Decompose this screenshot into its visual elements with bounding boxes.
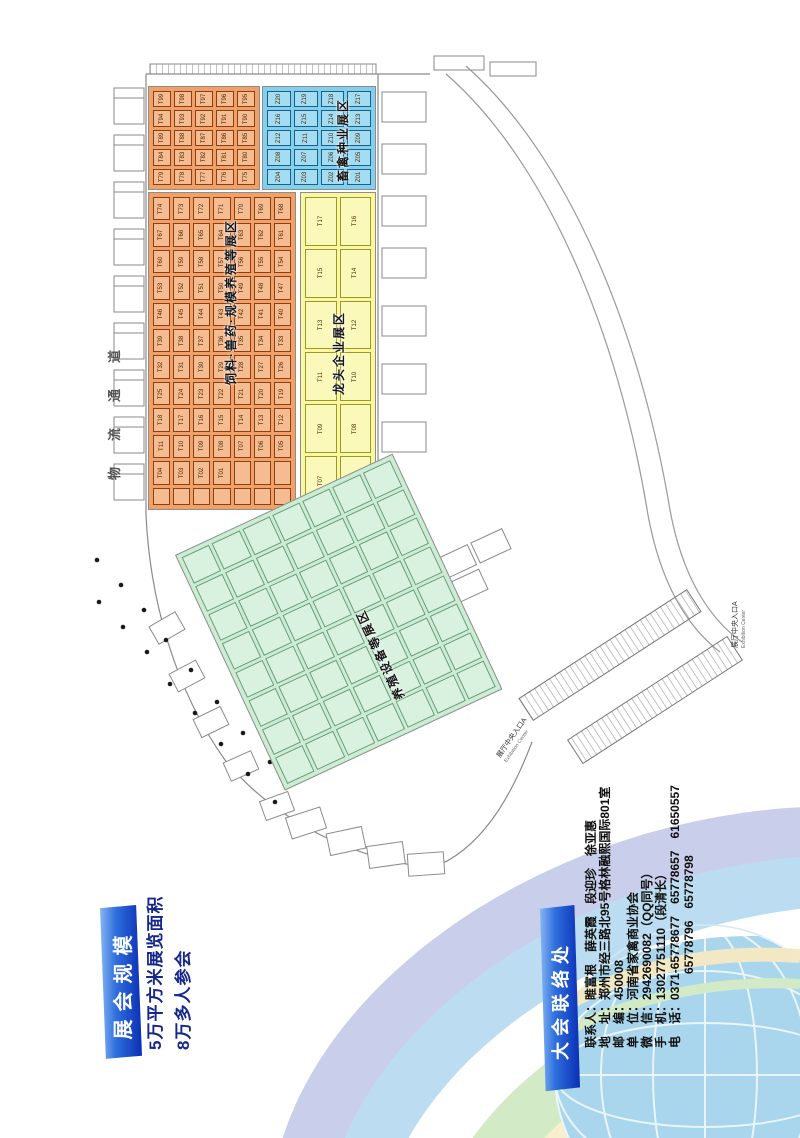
- zone-feed-main: T74T73T72T71T70T69T68T67T66T65T64T63T62T…: [148, 192, 296, 510]
- booth: T15: [213, 408, 230, 431]
- booth: T98: [174, 91, 192, 107]
- booth: T95: [237, 91, 255, 107]
- booth: T26: [274, 355, 291, 378]
- booth: [153, 488, 170, 505]
- booth: [193, 488, 210, 505]
- booth: T25: [153, 382, 170, 405]
- booth: T32: [153, 355, 170, 378]
- booth: T12: [274, 408, 291, 431]
- booth: T80: [237, 149, 255, 165]
- logistics-label: 物流通道: [106, 324, 124, 480]
- booth: T01: [213, 461, 230, 484]
- booth: T41: [254, 303, 271, 326]
- booth: T40: [274, 303, 291, 326]
- booth: T45: [173, 303, 190, 326]
- booth: T37: [193, 329, 210, 352]
- booth: T69: [254, 197, 271, 220]
- booth: [234, 461, 251, 484]
- booth: T76: [216, 169, 234, 185]
- booth: T15: [305, 249, 337, 298]
- contact-row: 邮 编：450008: [612, 960, 626, 1048]
- zone-seed: Z20Z19Z18Z17Z16Z15Z14Z13Z12Z11Z10Z09Z08Z…: [262, 86, 376, 190]
- booth: T17: [305, 197, 337, 246]
- booth: T73: [173, 197, 190, 220]
- booth: T33: [274, 329, 291, 352]
- booth: T77: [195, 169, 213, 185]
- booth: T67: [153, 223, 170, 246]
- zone-feed-top: T99T98T97T96T95T94T93T92T91T90T89T88T87T…: [148, 86, 260, 190]
- booth: T34: [254, 329, 271, 352]
- booth: T96: [216, 91, 234, 107]
- booth: T54: [274, 250, 291, 273]
- booth: T59: [173, 250, 190, 273]
- booth: T89: [153, 130, 171, 146]
- booth: [254, 488, 271, 505]
- booth: T39: [153, 329, 170, 352]
- booth: T47: [274, 276, 291, 299]
- booth: T79: [153, 169, 171, 185]
- booth: T08: [213, 435, 230, 458]
- booth: T23: [193, 382, 210, 405]
- booth: T60: [153, 250, 170, 273]
- booth: T87: [195, 130, 213, 146]
- booth: T97: [195, 91, 213, 107]
- booth: T48: [254, 276, 271, 299]
- booth: T61: [274, 223, 291, 246]
- booth: T99: [153, 91, 171, 107]
- booth: T91: [216, 110, 234, 126]
- booth: T16: [340, 197, 372, 246]
- booth: T19: [274, 382, 291, 405]
- booth: Z08: [267, 149, 291, 165]
- booth: T44: [193, 303, 210, 326]
- booth: [254, 461, 271, 484]
- booth: T71: [213, 197, 230, 220]
- booth: [213, 488, 230, 505]
- booth: Z04: [267, 169, 291, 185]
- booth: T93: [174, 110, 192, 126]
- booth: Z19: [294, 91, 318, 107]
- zone-seed-label: 畜禽种业展区: [336, 98, 350, 182]
- contact-row: 手 机：13027751110（段清长）: [654, 868, 668, 1048]
- booth: T55: [254, 250, 271, 273]
- booth: T08: [340, 404, 372, 453]
- booth: T90: [237, 110, 255, 126]
- booth: [173, 488, 190, 505]
- booth: Z17: [347, 91, 371, 107]
- booth: T17: [173, 408, 190, 431]
- booth: T68: [274, 197, 291, 220]
- booth: T18: [153, 408, 170, 431]
- booth: T46: [153, 303, 170, 326]
- entrance-label: 展厅中央入口A Exhibition Center: [730, 601, 747, 648]
- booth: Z05: [347, 149, 371, 165]
- booth: T13: [254, 408, 271, 431]
- booth: Z11: [294, 130, 318, 146]
- booth: T88: [174, 130, 192, 146]
- booth: T52: [173, 276, 190, 299]
- booth: T09: [193, 435, 210, 458]
- booth: T20: [254, 382, 271, 405]
- scale-area-line: 5万平方米展览面积: [146, 896, 166, 1050]
- booth: Z03: [294, 169, 318, 185]
- booth: T85: [237, 130, 255, 146]
- booth: T74: [153, 197, 170, 220]
- contact-banner-ribbon: 大会联络处: [540, 905, 580, 1095]
- booth: T51: [193, 276, 210, 299]
- scale-banner-ribbon: 展会规模: [100, 905, 142, 1062]
- booth: Z15: [294, 110, 318, 126]
- booth: T16: [193, 408, 210, 431]
- booth: T03: [173, 461, 190, 484]
- booth: T02: [193, 461, 210, 484]
- booth: T82: [195, 149, 213, 165]
- booth: T65: [193, 223, 210, 246]
- contact-row: 微 信：2942690082（QQ同号）: [640, 867, 654, 1048]
- contact-banner-text: 大会联络处: [547, 940, 573, 1060]
- booth: T05: [274, 435, 291, 458]
- zone-leading-label: 龙头企业展区: [332, 311, 346, 395]
- booth: T04: [153, 461, 170, 484]
- booth: T22: [213, 382, 230, 405]
- booth: T14: [340, 249, 372, 298]
- booth: T72: [193, 197, 210, 220]
- poster: 展厅中央入口A Exhibition Center 展厅中央入口A Exhibi…: [0, 0, 800, 1138]
- booth: T07: [234, 435, 251, 458]
- booth: T24: [173, 382, 190, 405]
- booth: T09: [305, 404, 337, 453]
- booth: T62: [254, 223, 271, 246]
- booth: T38: [173, 329, 190, 352]
- booth: T70: [234, 197, 251, 220]
- contact-row: 联系人：睢富根 薛英霞 段迎珍 徐亚惠: [584, 820, 598, 1048]
- booth: T11: [153, 435, 170, 458]
- scale-attendee-line: 8万多人参会: [174, 950, 194, 1050]
- booth: T27: [254, 355, 271, 378]
- booth: T30: [193, 355, 210, 378]
- booth: T81: [216, 149, 234, 165]
- contact-row: 65778796 65778798: [682, 855, 696, 974]
- contact-row: 地 址：郑州市经三路北95号格林融熙国际801室: [598, 787, 612, 1048]
- booth: T83: [174, 149, 192, 165]
- booth: T58: [193, 250, 210, 273]
- booth: T78: [174, 169, 192, 185]
- booth: T53: [153, 276, 170, 299]
- booth: Z16: [267, 110, 291, 126]
- booth: Z13: [347, 110, 371, 126]
- booth: Z01: [347, 169, 371, 185]
- booth: T31: [173, 355, 190, 378]
- booth: Z12: [267, 130, 291, 146]
- contact-row: 电 话：0371-65778677 65778657 61650557: [668, 785, 682, 1048]
- booth: T66: [173, 223, 190, 246]
- booth: Z09: [347, 130, 371, 146]
- booth: T86: [216, 130, 234, 146]
- booth: T06: [254, 435, 271, 458]
- entrance-label: 展厅中央入口A Exhibition Center: [494, 715, 535, 763]
- booth: T94: [153, 110, 171, 126]
- svg-text:Exhibition Center: Exhibition Center: [741, 610, 747, 648]
- zone-feed-label: 饲料·兽药·规模养殖等展区: [224, 219, 238, 385]
- booth: T75: [237, 169, 255, 185]
- booth: T84: [153, 149, 171, 165]
- booth: T10: [173, 435, 190, 458]
- booth: T92: [195, 110, 213, 126]
- booth: T14: [234, 408, 251, 431]
- contact-row: 单 位：河南省家禽商业协会: [626, 892, 640, 1048]
- scale-banner-text: 展会规模: [107, 928, 136, 1040]
- svg-text:展厅中央入口A: 展厅中央入口A: [730, 601, 739, 648]
- booth: T21: [234, 382, 251, 405]
- booth: [234, 488, 251, 505]
- booth: [274, 461, 291, 484]
- booth: Z20: [267, 91, 291, 107]
- booth: Z07: [294, 149, 318, 165]
